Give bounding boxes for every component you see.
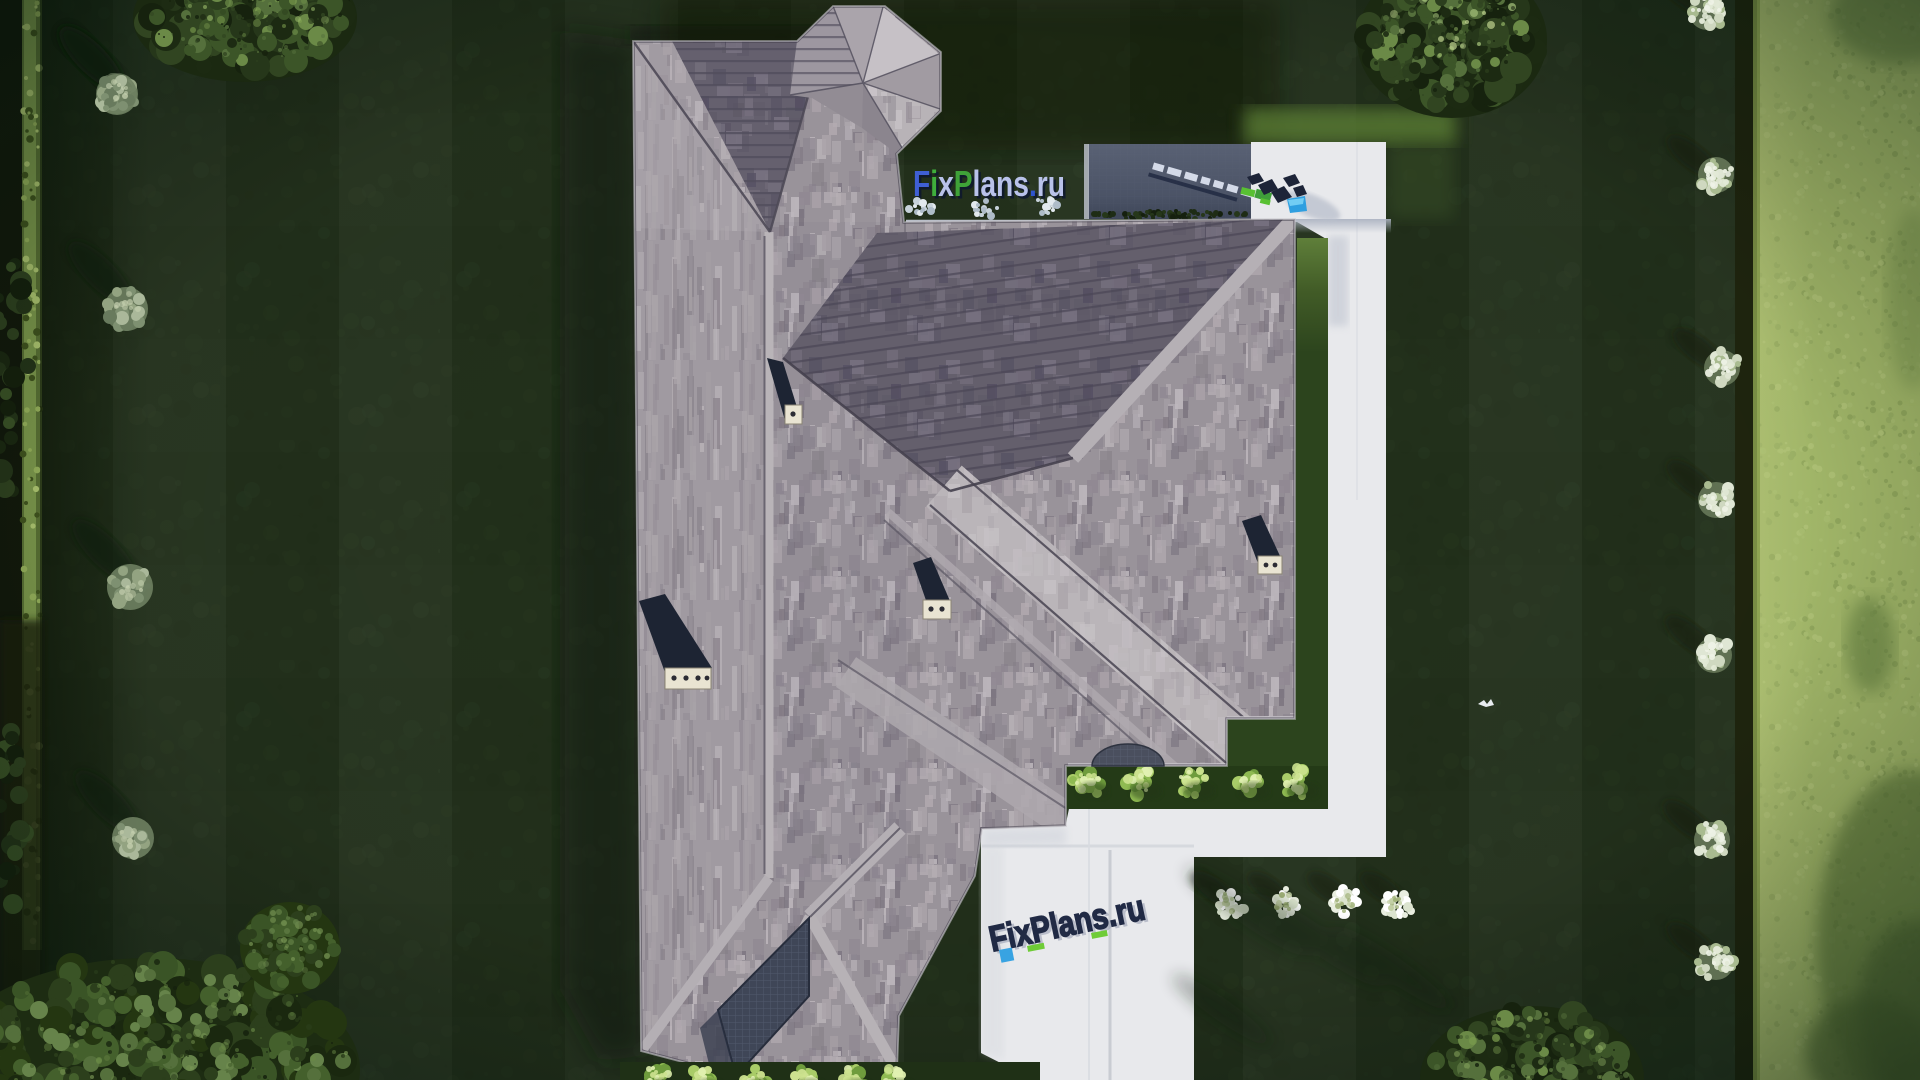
svg-text:FixPlans.ru: FixPlans.ru bbox=[913, 163, 1065, 204]
